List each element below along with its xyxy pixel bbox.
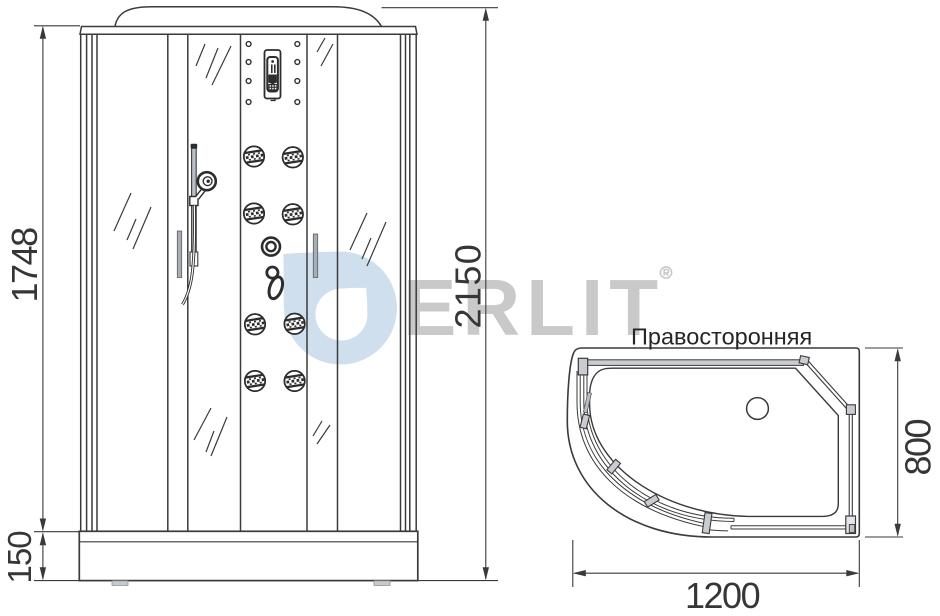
svg-text:1200: 1200: [685, 575, 760, 616]
svg-text:1748: 1748: [4, 228, 45, 303]
svg-text:800: 800: [898, 419, 939, 475]
svg-text:ERLIT: ERLIT: [403, 263, 664, 352]
svg-text:150: 150: [1, 531, 38, 584]
svg-text:Правосторонняя: Правосторонняя: [631, 324, 812, 350]
svg-text:2150: 2150: [448, 243, 489, 329]
